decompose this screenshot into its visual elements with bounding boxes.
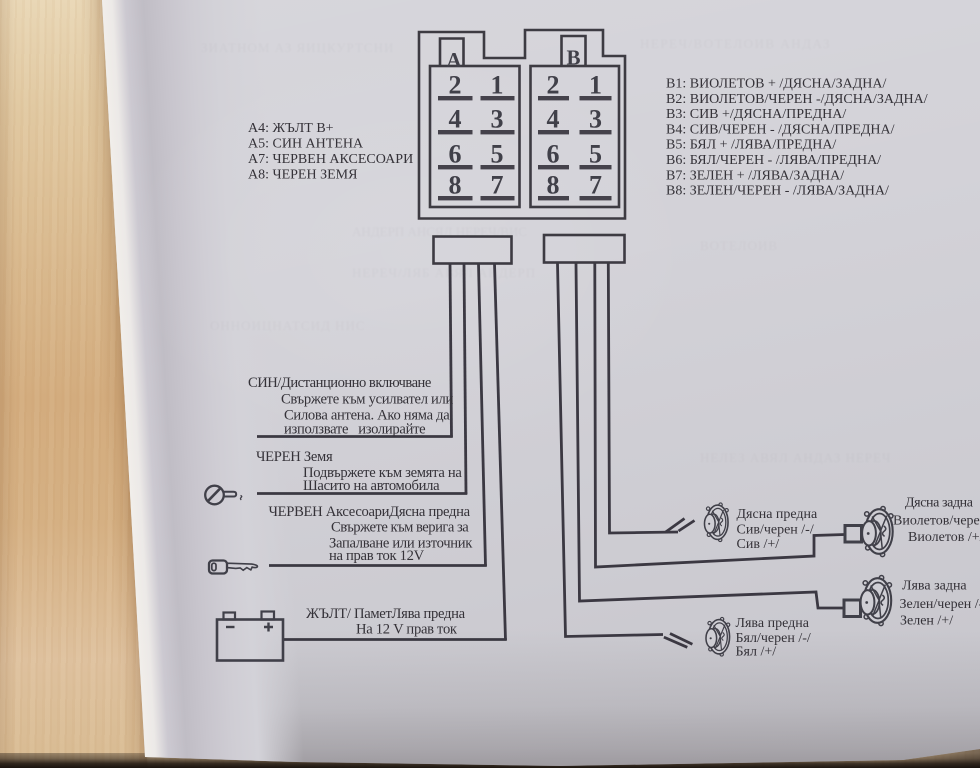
svg-text:2: 2	[449, 71, 462, 100]
svg-text:A: A	[446, 48, 462, 72]
svg-text:А7: ЧЕРВЕН АКСЕСОАРИ: А7: ЧЕРВЕН АКСЕСОАРИ	[248, 152, 413, 167]
svg-text:НЕРЕЧ/ЛЯБ АВЯЛ АНДЕРП: НЕРЕЧ/ЛЯБ АВЯЛ АНДЕРП	[352, 265, 536, 280]
svg-text:Сив/черен /-/: Сив/черен /-/	[737, 523, 814, 538]
svg-text:B: B	[566, 46, 580, 70]
svg-text:B4: СИВ/ЧЕРЕН - /ДЯСНА/ПРЕДНА/: B4: СИВ/ЧЕРЕН - /ДЯСНА/ПРЕДНА/	[666, 122, 895, 137]
svg-text:Дясна задна: Дясна задна	[905, 496, 974, 511]
svg-text:Свържете към верига за: Свържете към верига за	[331, 520, 469, 536]
svg-text:B1: ВИОЛЕТОВ + /ДЯСНА/ЗАДНА/: B1: ВИОЛЕТОВ + /ДЯСНА/ЗАДНА/	[666, 77, 886, 92]
svg-text:Зелен /+/: Зелен /+/	[900, 614, 953, 629]
svg-text:използвате изолирайте: използвате изолирайте	[284, 422, 425, 438]
svg-text:1: 1	[491, 71, 504, 100]
svg-text:Зелен/черен /-/: Зелен/черен /-/	[900, 597, 980, 612]
svg-text:ОННОИЦНАТСИД НИС: ОННОИЦНАТСИД НИС	[210, 318, 366, 333]
svg-text:А8: ЧЕРЕН ЗЕМЯ: А8: ЧЕРЕН ЗЕМЯ	[248, 168, 357, 183]
svg-text:Сив /+/: Сив /+/	[737, 537, 780, 552]
svg-text:B3: СИВ +/ДЯСНА/ПРЕДНА/: B3: СИВ +/ДЯСНА/ПРЕДНА/	[666, 107, 846, 122]
svg-text:B5: БЯЛ + /ЛЯВА/ПРЕДНА/: B5: БЯЛ + /ЛЯВА/ПРЕДНА/	[666, 138, 836, 153]
svg-text:ЗИАТНОМ АЗ ЯИЦКУРТСНИ: ЗИАТНОМ АЗ ЯИЦКУРТСНИ	[201, 40, 394, 55]
svg-text:6: 6	[547, 140, 560, 169]
svg-text:7: 7	[491, 171, 504, 200]
svg-text:5: 5	[589, 140, 602, 169]
svg-text:Виолетов /+/: Виолетов /+/	[908, 530, 980, 545]
svg-text:6: 6	[449, 140, 462, 169]
svg-text:ЖЪЛТ/ ПаметЛява предна: ЖЪЛТ/ ПаметЛява предна	[306, 606, 466, 622]
svg-text:7: 7	[589, 171, 602, 200]
svg-text:2: 2	[547, 71, 560, 100]
svg-text:ЧЕРЕН Земя: ЧЕРЕН Земя	[256, 449, 333, 465]
svg-text:На 12 V прав ток: На 12 V прав ток	[356, 622, 458, 638]
svg-text:Шасито на автомобила: Шасито на автомобила	[303, 478, 440, 494]
svg-text:СИН/Дистанционно включване: СИН/Дистанционно включване	[248, 375, 431, 391]
svg-text:Бял /+/: Бял /+/	[736, 645, 777, 660]
svg-text:B8: ЗЕЛЕН/ЧЕРЕН - /ЛЯВА/ЗАДНА/: B8: ЗЕЛЕН/ЧЕРЕН - /ЛЯВА/ЗАДНА/	[666, 184, 889, 199]
svg-text:3: 3	[589, 105, 602, 134]
svg-text:4: 4	[449, 105, 462, 134]
svg-text:8: 8	[449, 171, 462, 200]
svg-text:А5: СИН АНТЕНА: А5: СИН АНТЕНА	[248, 137, 364, 152]
svg-text:4: 4	[547, 105, 560, 134]
svg-text:B2: ВИОЛЕТОВ/ЧЕРЕН -/ДЯСНА/ЗАД: B2: ВИОЛЕТОВ/ЧЕРЕН -/ДЯСНА/ЗАДНА/	[666, 92, 928, 107]
svg-text:3: 3	[491, 105, 504, 134]
svg-text:1: 1	[589, 71, 602, 100]
svg-text:Дясна предна: Дясна предна	[737, 507, 819, 522]
svg-text:на прав ток 12V: на прав ток 12V	[329, 548, 425, 564]
svg-text:Свържете към усилвател или: Свържете към усилвател или	[281, 392, 454, 408]
svg-text:ВОТЕЛОИВ: ВОТЕЛОИВ	[700, 238, 778, 253]
svg-text:Лява задна: Лява задна	[902, 579, 967, 594]
svg-text:Лява предна: Лява предна	[736, 616, 810, 631]
svg-text:ЧЕРВЕН АксесоариДясна предна: ЧЕРВЕН АксесоариДясна предна	[269, 504, 471, 520]
svg-text:НЕЛЕЗ АВЯЛ АНДАЗ НЕРЕЧ: НЕЛЕЗ АВЯЛ АНДАЗ НЕРЕЧ	[700, 450, 891, 465]
svg-text:5: 5	[491, 140, 504, 169]
svg-text:НЕРЕЧ/ВОТЕЛОИВ АНДАЗ: НЕРЕЧ/ВОТЕЛОИВ АНДАЗ	[640, 36, 831, 51]
svg-text:Виолетов/черен: Виолетов/черен	[893, 514, 980, 529]
svg-text:B7: ЗЕЛЕН + /ЛЯВА/ЗАДНА/: B7: ЗЕЛЕН + /ЛЯВА/ЗАДНА/	[666, 168, 844, 183]
svg-text:А4: ЖЪЛТ В+: А4: ЖЪЛТ В+	[248, 121, 334, 136]
svg-text:B6: БЯЛ/ЧЕРЕН - /ЛЯВА/ПРЕДНА/: B6: БЯЛ/ЧЕРЕН - /ЛЯВА/ПРЕДНА/	[666, 153, 881, 168]
svg-text:8: 8	[547, 171, 560, 200]
